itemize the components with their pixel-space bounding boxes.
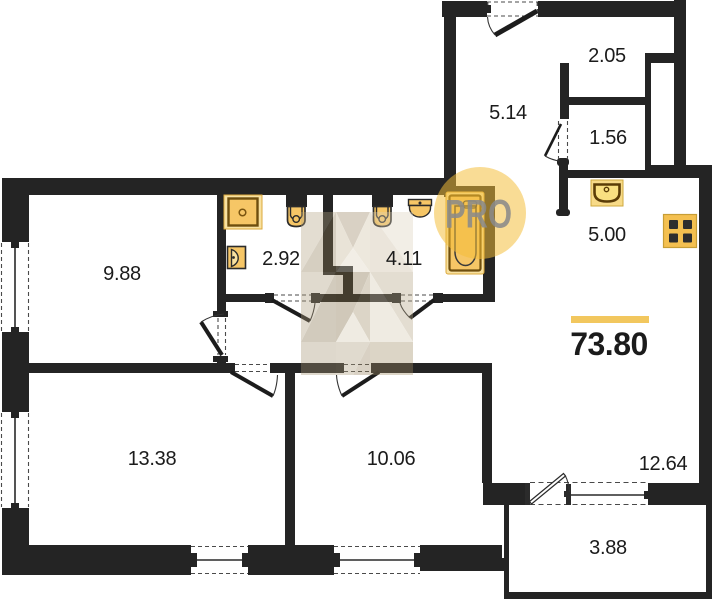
svg-text:10.06: 10.06 (367, 448, 416, 470)
svg-text:2.05: 2.05 (588, 45, 626, 67)
svg-text:9.88: 9.88 (103, 263, 141, 285)
svg-text:4.11: 4.11 (386, 248, 422, 270)
svg-text:PRO: PRO (445, 193, 512, 237)
svg-text:3.88: 3.88 (589, 537, 627, 559)
svg-text:12.64: 12.64 (639, 453, 688, 475)
svg-text:13.38: 13.38 (128, 448, 177, 470)
svg-text:5.00: 5.00 (588, 224, 626, 246)
svg-text:2.92: 2.92 (262, 248, 300, 270)
svg-text:73.80: 73.80 (570, 326, 648, 362)
svg-text:5.14: 5.14 (489, 102, 527, 124)
svg-text:1.56: 1.56 (589, 127, 627, 149)
